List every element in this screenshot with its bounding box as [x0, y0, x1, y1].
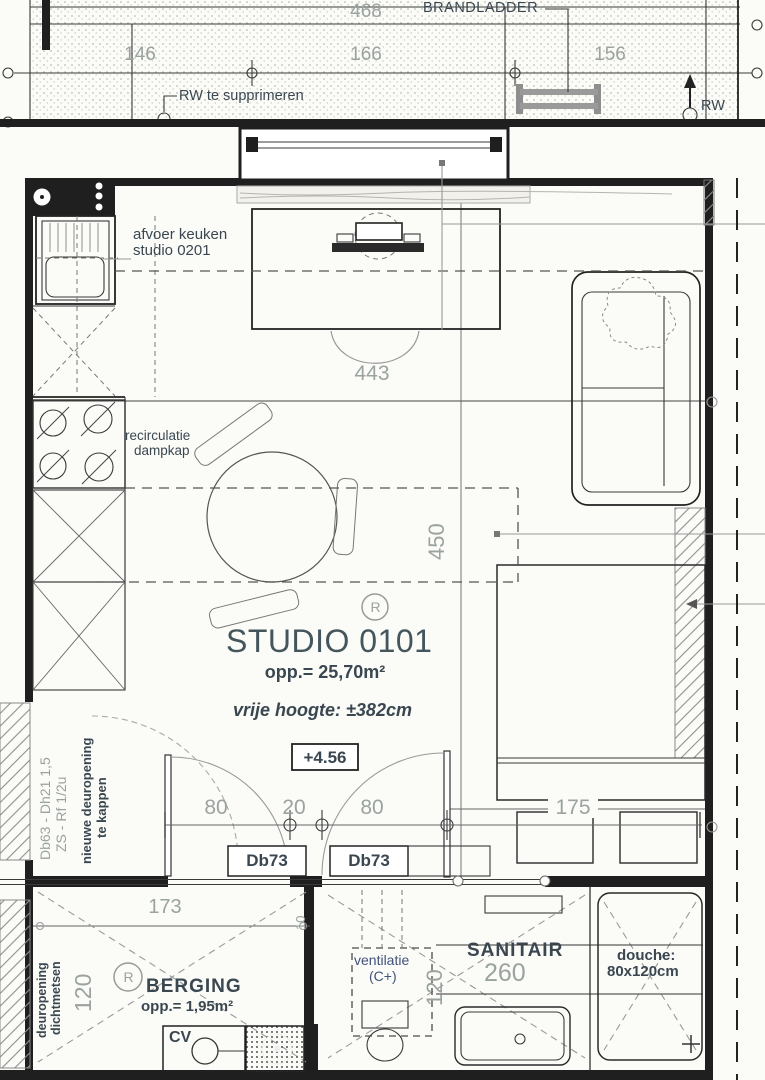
- dampkap-label-1: recirculatie: [125, 429, 190, 443]
- column-hatch-bed: [675, 508, 705, 758]
- sanitair-name: SANITAIR: [467, 941, 563, 960]
- door-leaf: [165, 755, 171, 876]
- berging-area: opp.= 1,95m²: [141, 999, 233, 1014]
- r-symbol-berging: R: [120, 970, 137, 984]
- berging-wall-note-2: dichtmetsen: [50, 961, 63, 1035]
- pillow: [517, 812, 593, 863]
- rw-label: RW: [701, 99, 725, 114]
- column-hatch-top: [704, 180, 714, 225]
- door-dim-right: 80: [352, 797, 392, 818]
- afvoer-label-2: studio 0201: [133, 243, 211, 258]
- kitchen-sink: [36, 216, 131, 304]
- washbasin-icon: [455, 1007, 570, 1065]
- dim-desk: 443: [348, 363, 396, 384]
- door-dim-mid: 20: [276, 797, 312, 818]
- r-symbol-studio: R: [367, 600, 384, 614]
- dining-table: [192, 400, 358, 629]
- kitchen-unit-x1: [33, 490, 125, 582]
- room-title: STUDIO 0101: [226, 625, 422, 657]
- douche-label-1: douche:: [617, 948, 675, 963]
- desk-chair: [331, 331, 419, 363]
- wall-note-1: Db63 - Dh21 1,5: [38, 757, 52, 860]
- berging-name: BERGING: [146, 977, 242, 996]
- wall-note-2: ZS - Rf 1/2u: [54, 777, 68, 852]
- dim-bed: 175: [548, 797, 598, 818]
- door-note-1: nieuwe deuropening: [80, 738, 93, 864]
- level-label: +4.56: [292, 749, 358, 766]
- toilet-icon: [362, 1001, 408, 1061]
- sofa: [572, 272, 700, 505]
- dim-120-sanitair: 120: [424, 969, 446, 1006]
- desk: [237, 186, 672, 363]
- wall-to-remove-hatch: [0, 703, 30, 860]
- rw-note-label: RW te supprimeren: [179, 89, 304, 104]
- kitchen-base-cabinet: [33, 306, 115, 396]
- dim-260: 260: [484, 961, 526, 986]
- floor-shaft: [246, 1026, 304, 1072]
- wall-hatch-lower: [0, 900, 30, 1068]
- door-note-2: te kappen: [95, 777, 108, 838]
- brandladder-label: BRANDLADDER: [423, 1, 538, 16]
- dim-146: 146: [118, 45, 162, 64]
- chair: [192, 400, 275, 468]
- overhead-dashed-lines: [95, 271, 705, 582]
- dim-10: 10: [294, 916, 307, 930]
- cooktop-icon: [33, 400, 125, 488]
- dim-173: 173: [140, 897, 190, 917]
- berging-wall-note-1: deuropening: [36, 962, 49, 1038]
- dampkap-label-2: dampkap: [134, 444, 190, 458]
- cv-label: CV: [169, 1030, 191, 1046]
- dim-total: 468: [344, 2, 388, 21]
- dim-166: 166: [344, 45, 388, 64]
- plant-icon: [602, 277, 675, 349]
- pillow: [620, 812, 697, 863]
- floor-plan: 468 BRANDLADDER 146 166 156 RW te suppri…: [0, 0, 765, 1080]
- door-code-left: Db73: [228, 852, 306, 869]
- ventilatie-label-2: (C+): [369, 969, 397, 983]
- pipe-point: [540, 876, 550, 886]
- floorplan-linework: [0, 0, 765, 1080]
- reference-leaders: [439, 160, 765, 832]
- desk-lamp-icon: [332, 213, 424, 259]
- window-bay: [240, 128, 508, 180]
- door-code-right: Db73: [330, 852, 408, 869]
- cistern: [485, 896, 562, 913]
- ventilatie-label-1: ventilatie: [354, 953, 409, 967]
- afvoer-label-1: afvoer keuken: [133, 227, 227, 242]
- pipe-point: [453, 876, 463, 886]
- room-area: opp.= 25,70m²: [240, 663, 410, 681]
- dim-depth: 450: [426, 523, 448, 560]
- kitchen-unit-x2: [33, 582, 125, 690]
- dim-120-berging: 120: [72, 974, 95, 1012]
- door-dim-left: 80: [196, 797, 236, 818]
- sanitair-diagonals: [328, 895, 585, 1058]
- douche-label-2: 80x120cm: [607, 964, 679, 979]
- duct-shaft-icon: [25, 178, 115, 216]
- dim-156: 156: [588, 45, 632, 64]
- height-note: vrije hoogte: ±382cm: [215, 701, 430, 719]
